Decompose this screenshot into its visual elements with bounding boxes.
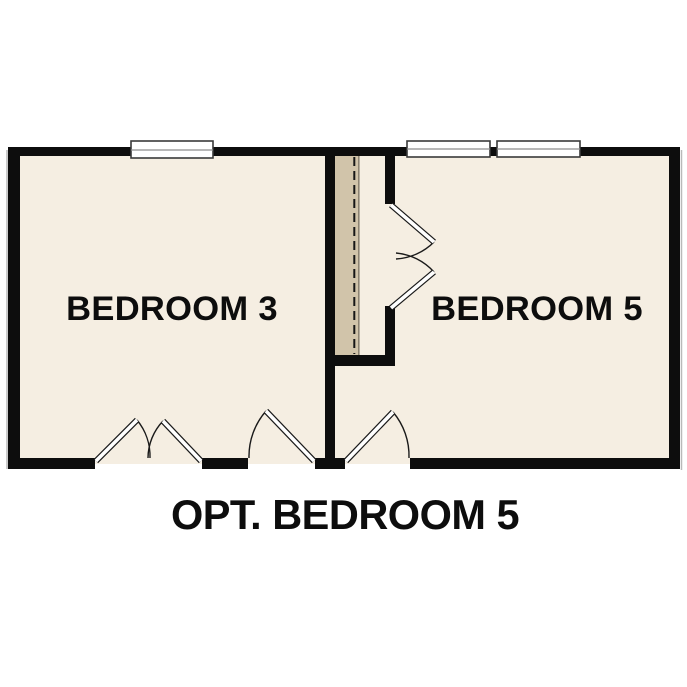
wall-bottom-seg-4 bbox=[410, 458, 680, 469]
plan-caption: OPT. BEDROOM 5 bbox=[171, 491, 519, 538]
wall-left bbox=[8, 147, 20, 469]
wall-closet-bottom bbox=[325, 355, 395, 366]
wall-right bbox=[669, 147, 680, 469]
wall-middle bbox=[325, 147, 335, 469]
floor-plan: BEDROOM 3 BEDROOM 5 OPT. BEDROOM 5 bbox=[0, 0, 687, 687]
wall-bottom-seg-3 bbox=[315, 458, 345, 469]
bedroom-5-window-left-icon bbox=[407, 141, 490, 157]
room-label-bedroom-5: BEDROOM 5 bbox=[431, 290, 643, 328]
wall-bottom-seg-2 bbox=[202, 458, 248, 469]
floor-plan-canvas: BEDROOM 3 BEDROOM 5 OPT. BEDROOM 5 bbox=[0, 0, 687, 687]
bedroom-5-window-right-icon bbox=[497, 141, 580, 157]
wall-closet-right-upper bbox=[385, 147, 395, 204]
wall-bottom-seg-1 bbox=[8, 458, 95, 469]
room-label-bedroom-3: BEDROOM 3 bbox=[66, 290, 278, 328]
bedroom-3-window-icon bbox=[131, 141, 213, 158]
